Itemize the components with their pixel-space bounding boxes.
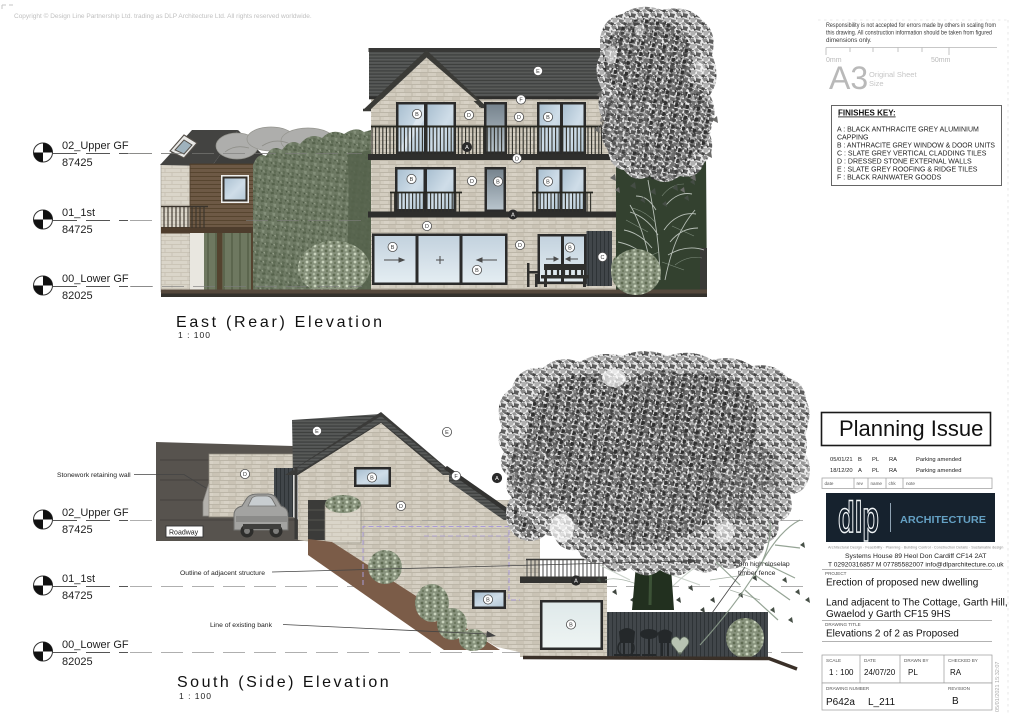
- svg-text:PROJECT: PROJECT: [825, 571, 847, 576]
- svg-text:D: D: [425, 224, 429, 230]
- svg-text:RA: RA: [889, 457, 897, 463]
- svg-text:F : BLACK RAINWATER GOODS: F : BLACK RAINWATER GOODS: [837, 175, 942, 182]
- svg-text:Elevations 2 of 2 as Proposed: Elevations 2 of 2 as Proposed: [826, 629, 959, 640]
- svg-text:50mm: 50mm: [931, 57, 951, 64]
- svg-text:Responsibility is not accepted: Responsibility is not accepted for error…: [826, 22, 996, 29]
- svg-text:Gwaelod y Garth CF15 9HS: Gwaelod y Garth CF15 9HS: [826, 609, 951, 620]
- svg-text:B: B: [546, 115, 550, 121]
- svg-text:24/07/20: 24/07/20: [864, 668, 896, 677]
- svg-text:D: D: [399, 504, 403, 510]
- svg-text:B : ANTHRACITE GREY WINDOW & D: B : ANTHRACITE GREY WINDOW & DOOR UNITS: [837, 143, 995, 150]
- svg-text:DATE: DATE: [864, 658, 876, 663]
- svg-text:Parking amended: Parking amended: [916, 468, 961, 474]
- svg-text:B: B: [415, 112, 419, 118]
- svg-text:A : BLACK ANTHRACITE GREY ALUM: A : BLACK ANTHRACITE GREY ALUMINIUM: [837, 127, 979, 134]
- svg-text:CAPPING: CAPPING: [837, 135, 869, 142]
- svg-text:Land adjacent to The Cottage,: Land adjacent to The Cottage, Garth Hill…: [826, 598, 1008, 609]
- svg-text:18/12/20: 18/12/20: [830, 468, 853, 474]
- svg-text:82025: 82025: [62, 290, 93, 302]
- svg-text:date: date: [825, 481, 834, 486]
- svg-text:South (Side) Elevation: South (Side) Elevation: [177, 674, 391, 691]
- svg-text:A: A: [465, 145, 469, 151]
- svg-text:Copyright © Design Line Partne: Copyright © Design Line Partnership Ltd.…: [14, 12, 312, 20]
- svg-text:B: B: [486, 598, 490, 604]
- svg-text:E: E: [315, 429, 319, 435]
- svg-text:FINISHES KEY:: FINISHES KEY:: [838, 109, 896, 118]
- svg-text:B: B: [568, 246, 572, 252]
- svg-text:this drawing. All constructio: this drawing. All construction informati…: [826, 30, 992, 37]
- svg-text:E : SLATE GREY ROOFING & RIDGE: E : SLATE GREY ROOFING & RIDGE TILES: [837, 167, 978, 174]
- svg-text:D: D: [467, 113, 471, 119]
- svg-text:DRAWING NUMBER: DRAWING NUMBER: [826, 686, 870, 691]
- svg-text:dimensions only.: dimensions only.: [826, 37, 872, 44]
- svg-text:PL: PL: [872, 457, 880, 463]
- svg-text:01_1st: 01_1st: [62, 207, 95, 219]
- svg-text:A: A: [858, 468, 862, 474]
- svg-text:B: B: [952, 696, 959, 707]
- svg-text:DRAWN BY: DRAWN BY: [904, 658, 929, 663]
- svg-text:RA: RA: [950, 668, 962, 677]
- svg-text:A: A: [511, 213, 515, 219]
- svg-text:chk: chk: [889, 481, 897, 486]
- svg-text:PL: PL: [908, 668, 918, 677]
- svg-text:B: B: [569, 623, 573, 629]
- svg-text:Systems House 89 Heol Don: Systems House 89 Heol Don Cardiff CF14 2…: [845, 553, 986, 560]
- svg-text:C: C: [601, 255, 605, 261]
- svg-text:D: D: [243, 472, 247, 478]
- svg-text:C : SLATE GREY VERTICAL CLADDI: C : SLATE GREY VERTICAL CLADDING TILES: [837, 151, 987, 158]
- svg-text:B: B: [496, 180, 500, 186]
- svg-text:DRAWING TITLE: DRAWING TITLE: [825, 622, 861, 627]
- svg-text:rev: rev: [857, 481, 864, 486]
- svg-text:Size: Size: [869, 79, 884, 88]
- svg-text:D: D: [470, 179, 474, 185]
- svg-text:RA: RA: [889, 468, 897, 474]
- svg-text:East (Rear) Elevation: East (Rear) Elevation: [176, 314, 385, 331]
- svg-text:CHECKED BY: CHECKED BY: [948, 658, 978, 663]
- svg-text:B: B: [858, 457, 862, 463]
- svg-text:B: B: [546, 180, 550, 186]
- svg-text:REVISION: REVISION: [948, 686, 970, 691]
- svg-text:1 : 100: 1 : 100: [829, 668, 854, 677]
- svg-text:L_211: L_211: [868, 697, 896, 708]
- svg-text:name: name: [871, 481, 883, 486]
- svg-text:A3: A3: [829, 60, 868, 96]
- svg-text:B: B: [370, 476, 374, 482]
- svg-text:PL: PL: [872, 468, 880, 474]
- svg-text:Roadway: Roadway: [169, 530, 199, 537]
- svg-text:Planning Issue: Planning Issue: [839, 416, 983, 441]
- svg-text:Original Sheet: Original Sheet: [869, 70, 917, 79]
- svg-text:note: note: [906, 481, 915, 486]
- svg-text:Parking amended: Parking amended: [916, 457, 961, 463]
- svg-text:1 : 100: 1 : 100: [179, 691, 212, 701]
- svg-text:E: E: [445, 430, 449, 436]
- svg-text:P642a: P642a: [826, 697, 855, 708]
- svg-text:Architectural Design · Feasibi: Architectural Design · Feasibility · Pla…: [828, 546, 1003, 550]
- svg-text:84725: 84725: [62, 224, 93, 236]
- svg-text:87425: 87425: [62, 524, 93, 536]
- svg-text:dlp: dlp: [838, 493, 879, 542]
- svg-text:1 : 100: 1 : 100: [178, 330, 211, 340]
- svg-text:84725: 84725: [62, 590, 93, 602]
- svg-text:02_Upper GF: 02_Upper GF: [62, 507, 129, 519]
- svg-text:E: E: [536, 69, 540, 75]
- svg-text:timber fence: timber fence: [738, 570, 776, 577]
- svg-text:D : DRESSED STONE EXTERNAL WAL: D : DRESSED STONE EXTERNAL WALLS: [837, 159, 972, 166]
- svg-text:00_Lower GF: 00_Lower GF: [62, 639, 129, 651]
- svg-text:Stonework retaining wall: Stonework retaining wall: [57, 472, 131, 479]
- svg-text:01_1st: 01_1st: [62, 573, 95, 585]
- svg-text:Erection of proposed new dwell: Erection of proposed new dwelling: [826, 578, 978, 589]
- svg-text:D: D: [515, 157, 519, 163]
- svg-text:D: D: [517, 115, 521, 121]
- svg-text:B: B: [475, 268, 479, 274]
- svg-text:T 02920316857 M 0778: T 02920316857 M 07785582007 info@dlparch…: [828, 562, 1004, 569]
- svg-text:D: D: [518, 243, 522, 249]
- svg-text:B: B: [391, 245, 395, 251]
- svg-text:ARCHITECTURE: ARCHITECTURE: [900, 515, 986, 526]
- svg-text:Line of existing bank: Line of existing bank: [210, 622, 273, 629]
- svg-text:B: B: [410, 177, 414, 183]
- svg-text:05/01/21: 05/01/21: [830, 457, 853, 463]
- svg-text:SCALE: SCALE: [826, 658, 841, 663]
- svg-text:82025: 82025: [62, 656, 93, 668]
- svg-text:A: A: [574, 579, 578, 585]
- svg-text:00_Lower GF: 00_Lower GF: [62, 273, 129, 285]
- svg-text:87425: 87425: [62, 157, 93, 169]
- svg-text:1.8m high closelap: 1.8m high closelap: [733, 561, 790, 568]
- svg-text:05/01/2021 15:32:07: 05/01/2021 15:32:07: [995, 662, 1001, 712]
- svg-text:Outline of adjacent structure: Outline of adjacent structure: [180, 570, 265, 577]
- svg-text:02_Upper GF: 02_Upper GF: [62, 140, 129, 152]
- svg-text:A: A: [495, 476, 499, 482]
